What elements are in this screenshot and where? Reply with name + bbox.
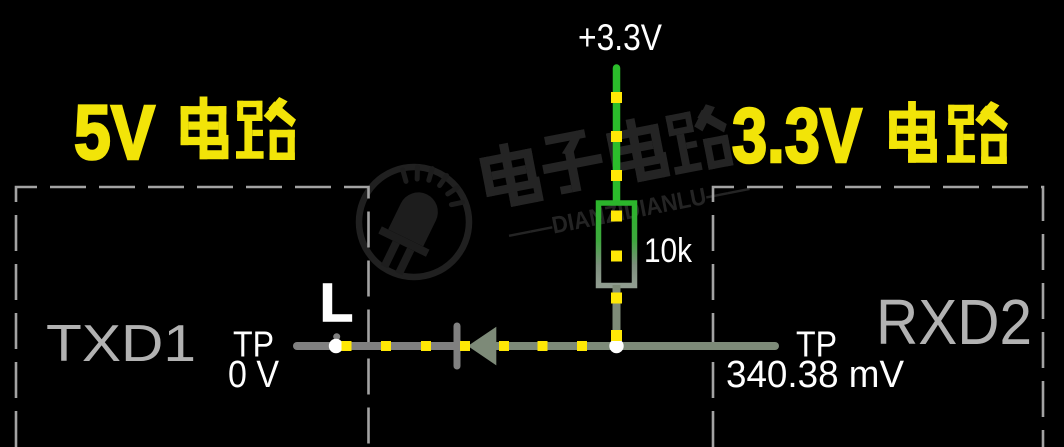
svg-text:10k: 10k [644,232,693,270]
svg-text:5V: 5V [74,90,155,176]
svg-text:+3.3V: +3.3V [578,17,662,58]
svg-text:0 V: 0 V [228,354,280,396]
svg-text:340.38 mV: 340.38 mV [726,354,905,396]
svg-text:RXD2: RXD2 [876,286,1032,358]
svg-text:3.3V: 3.3V [732,93,862,179]
svg-text:TXD1: TXD1 [46,315,196,373]
svg-text:L: L [320,273,353,333]
